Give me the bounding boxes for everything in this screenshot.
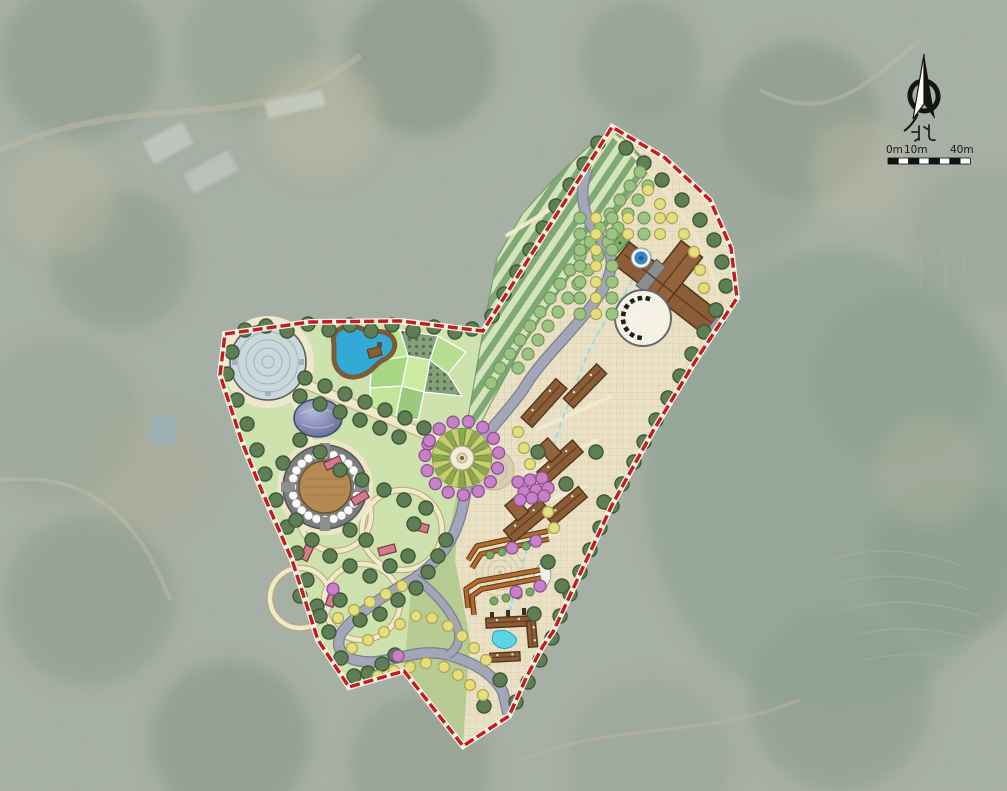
plan-drawing: 北 0m 10m 40m <box>0 0 1007 791</box>
site-master-plan: 北 0m 10m 40m <box>0 0 1007 791</box>
photo-grain <box>0 0 1007 791</box>
scale-label-0: 0m <box>886 144 903 156</box>
scale-bar-segments <box>888 158 970 164</box>
scale-label-40: 40m <box>950 144 974 156</box>
scale-label-10: 10m <box>904 144 928 156</box>
